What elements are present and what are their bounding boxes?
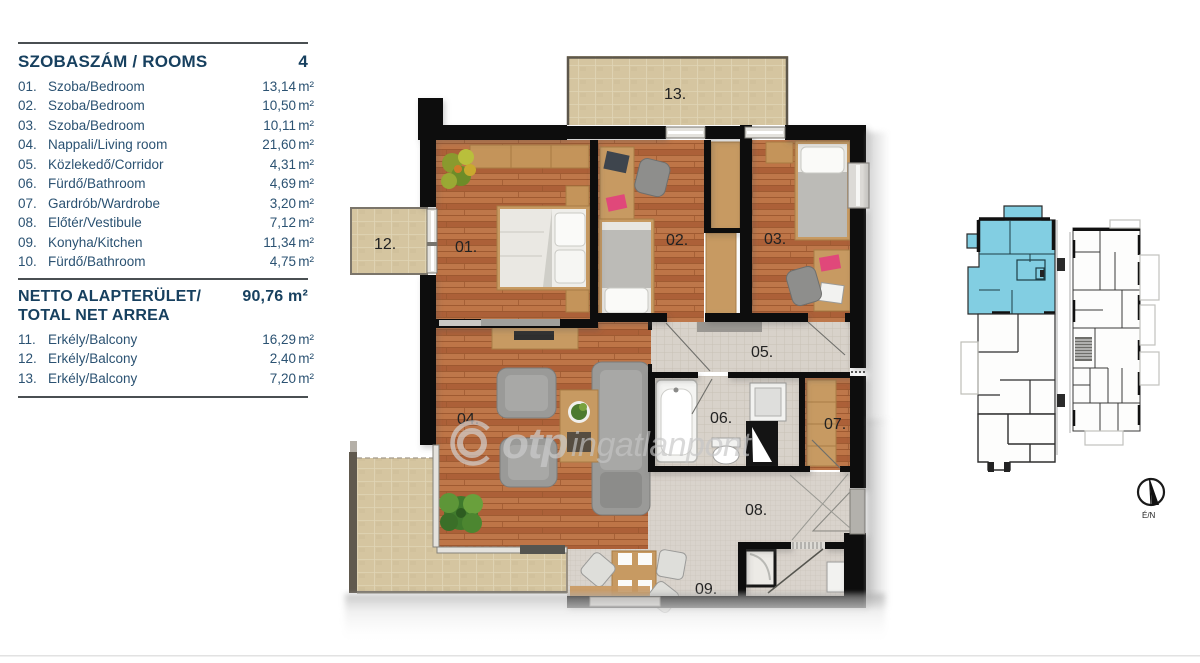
svg-text:08.: 08.	[745, 502, 767, 519]
svg-text:07.: 07.	[824, 416, 846, 433]
svg-text:06.: 06.	[710, 410, 732, 427]
svg-text:otp: otp	[502, 419, 568, 468]
svg-text:É/N: É/N	[1142, 511, 1156, 520]
svg-text:02.: 02.	[666, 232, 688, 249]
svg-text:03.: 03.	[764, 231, 786, 248]
svg-text:12.: 12.	[374, 236, 396, 253]
svg-text:ingatlanpont: ingatlanpont	[571, 426, 752, 464]
svg-text:05.: 05.	[751, 344, 773, 361]
svg-text:01.: 01.	[455, 239, 477, 256]
svg-text:13.: 13.	[664, 86, 686, 103]
